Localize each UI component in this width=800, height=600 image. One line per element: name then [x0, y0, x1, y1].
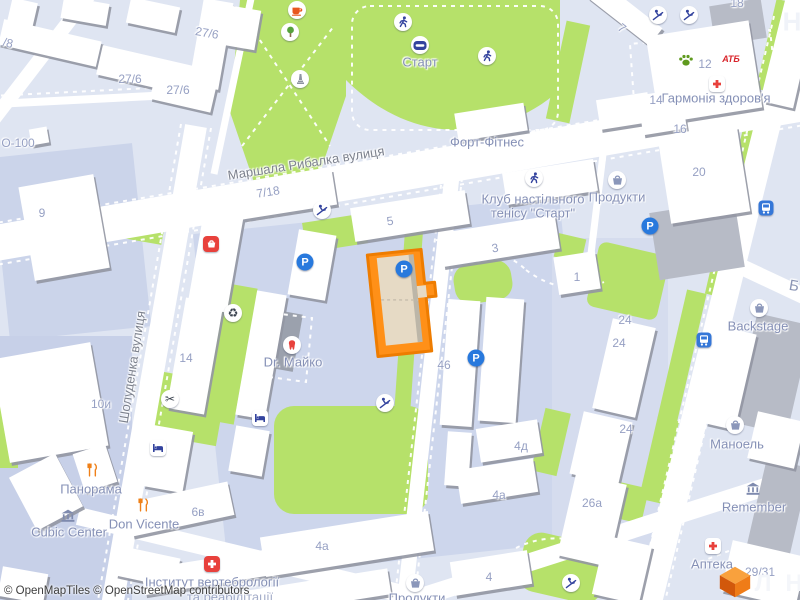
basemap	[0, 0, 800, 600]
maptiler-cube-icon	[716, 564, 754, 600]
bank-building-icon[interactable]	[61, 510, 76, 523]
clinic-cross-icon[interactable]	[204, 556, 220, 572]
map-canvas[interactable]: Маршала Рибалка вулицяШолуденка вулицяСт…	[0, 0, 800, 600]
monument-icon[interactable]	[291, 70, 309, 88]
pharmacy-cross-icon[interactable]	[709, 76, 725, 92]
hotel-bed-icon[interactable]	[252, 410, 268, 426]
parking-icon[interactable]: P	[297, 254, 314, 271]
parking-icon[interactable]: P	[642, 218, 659, 235]
runner-icon[interactable]	[478, 47, 496, 65]
restaurant-icon[interactable]	[137, 498, 149, 512]
grocery-basket-icon[interactable]	[608, 171, 626, 189]
hotel-bed-icon[interactable]	[150, 440, 166, 456]
shop-basket-icon[interactable]	[726, 416, 744, 434]
maptiler-logo[interactable]	[716, 564, 754, 600]
stadium-icon[interactable]	[411, 36, 429, 54]
shop-icon[interactable]	[203, 236, 219, 252]
pharmacy-cross-icon[interactable]	[705, 538, 721, 554]
grocery-basket-icon[interactable]	[406, 574, 424, 592]
bus-stop-icon[interactable]	[759, 201, 774, 216]
shop-basket-icon[interactable]	[750, 299, 768, 317]
playground-icon[interactable]	[562, 574, 580, 592]
restaurant-icon[interactable]	[86, 463, 98, 477]
playground-icon[interactable]	[313, 201, 331, 219]
playground-icon[interactable]	[649, 6, 667, 24]
dentist-tooth-icon[interactable]	[283, 336, 301, 354]
atb-logo[interactable]: АТБ	[722, 54, 739, 64]
runner-icon[interactable]	[394, 13, 412, 31]
playground-icon[interactable]	[680, 6, 698, 24]
museum-building-icon[interactable]	[746, 483, 761, 496]
hairdresser-scissors-icon[interactable]: ✂	[161, 390, 179, 408]
attribution: © OpenMapTiles © OpenStreetMap contribut…	[4, 585, 249, 597]
bus-stop-icon[interactable]	[697, 333, 712, 348]
parking-icon[interactable]: P	[396, 261, 413, 278]
tree-icon[interactable]	[281, 23, 299, 41]
cafe-icon[interactable]	[288, 1, 306, 19]
parking-icon[interactable]: P	[468, 350, 485, 367]
recycling-icon[interactable]: ♻	[224, 304, 242, 322]
table-tennis-club-icon[interactable]	[525, 169, 543, 187]
playground-icon[interactable]	[376, 394, 394, 412]
paw-icon[interactable]	[678, 53, 694, 67]
